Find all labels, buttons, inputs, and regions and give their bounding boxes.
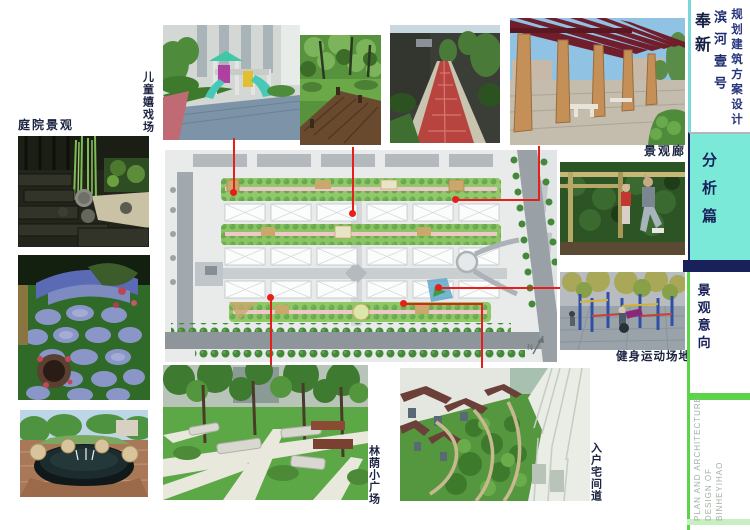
connector-corridor-v — [538, 146, 540, 201]
connector-entry-lane-v — [481, 303, 483, 368]
connector-dot-plaza — [267, 294, 274, 301]
connector-dot-entry-lane — [400, 300, 407, 307]
connector-dot-boardwalk — [349, 210, 356, 217]
tab-analysis-label: 分析篇 — [699, 152, 720, 236]
photo-exercise-bars — [560, 162, 685, 255]
sidebar-green-rule — [687, 272, 690, 530]
label-shaded-plaza: 林荫小广场 — [368, 445, 380, 505]
connector-dot-corridor — [452, 196, 459, 203]
photo-entry-lane — [400, 368, 590, 501]
plan-green-strip-north — [221, 178, 501, 201]
label-landscape-corridor: 景观廊 — [642, 145, 686, 158]
connector-plaza — [270, 299, 272, 365]
connector-entry-lane-h — [404, 303, 483, 305]
photo-fountain — [20, 410, 148, 497]
photo-paved-lane — [390, 25, 500, 143]
photo-pergola — [510, 18, 685, 145]
label-fitness-ground: 健身运动场地 — [616, 350, 691, 362]
connector-children-playground — [233, 138, 235, 192]
plan-entry-plaza-west — [195, 262, 223, 286]
connector-dot-children — [230, 189, 237, 196]
plan-green-strip-middle — [221, 224, 501, 245]
north-label: N — [527, 343, 533, 352]
footer-english-caption: PLAN AND ARCHITECTURE DESIGN OF BINHEYIH… — [693, 409, 725, 521]
photo-children-playground — [163, 25, 300, 140]
photo-shaded-plaza — [163, 365, 368, 500]
connector-fitness — [440, 287, 560, 289]
photo-courtyard — [18, 136, 149, 247]
site-plan: N — [165, 150, 557, 362]
connector-dot-fitness — [435, 284, 442, 291]
tab-analysis-section: 分析篇 — [688, 132, 750, 260]
connector-corridor-h — [456, 199, 540, 201]
title-subtitle: 规划建筑方案设计 — [729, 8, 745, 128]
tab-landscape-intent: 景观意向 — [695, 283, 709, 353]
footer-line-1: PLAN AND ARCHITECTURE — [693, 409, 704, 521]
connector-boardwalk — [352, 147, 354, 213]
label-entry-lane: 入户宅间道 — [590, 442, 602, 502]
sidebar-navy-bar — [683, 260, 750, 272]
title-location: 奉新 — [689, 12, 713, 60]
label-children-playground: 儿童嬉戏场 — [142, 71, 154, 134]
footer-line-3: BINHEYIHAO — [715, 409, 726, 521]
plan-green-strip-south — [229, 302, 491, 322]
presentation-board: 庭院景观 — [0, 0, 750, 530]
photo-stone-paving — [18, 255, 150, 400]
label-courtyard: 庭院景观 — [18, 119, 74, 132]
photo-boardwalk — [300, 35, 381, 145]
photo-fitness-equipment — [560, 272, 685, 350]
footer-line-2: DESIGN OF — [704, 409, 715, 521]
